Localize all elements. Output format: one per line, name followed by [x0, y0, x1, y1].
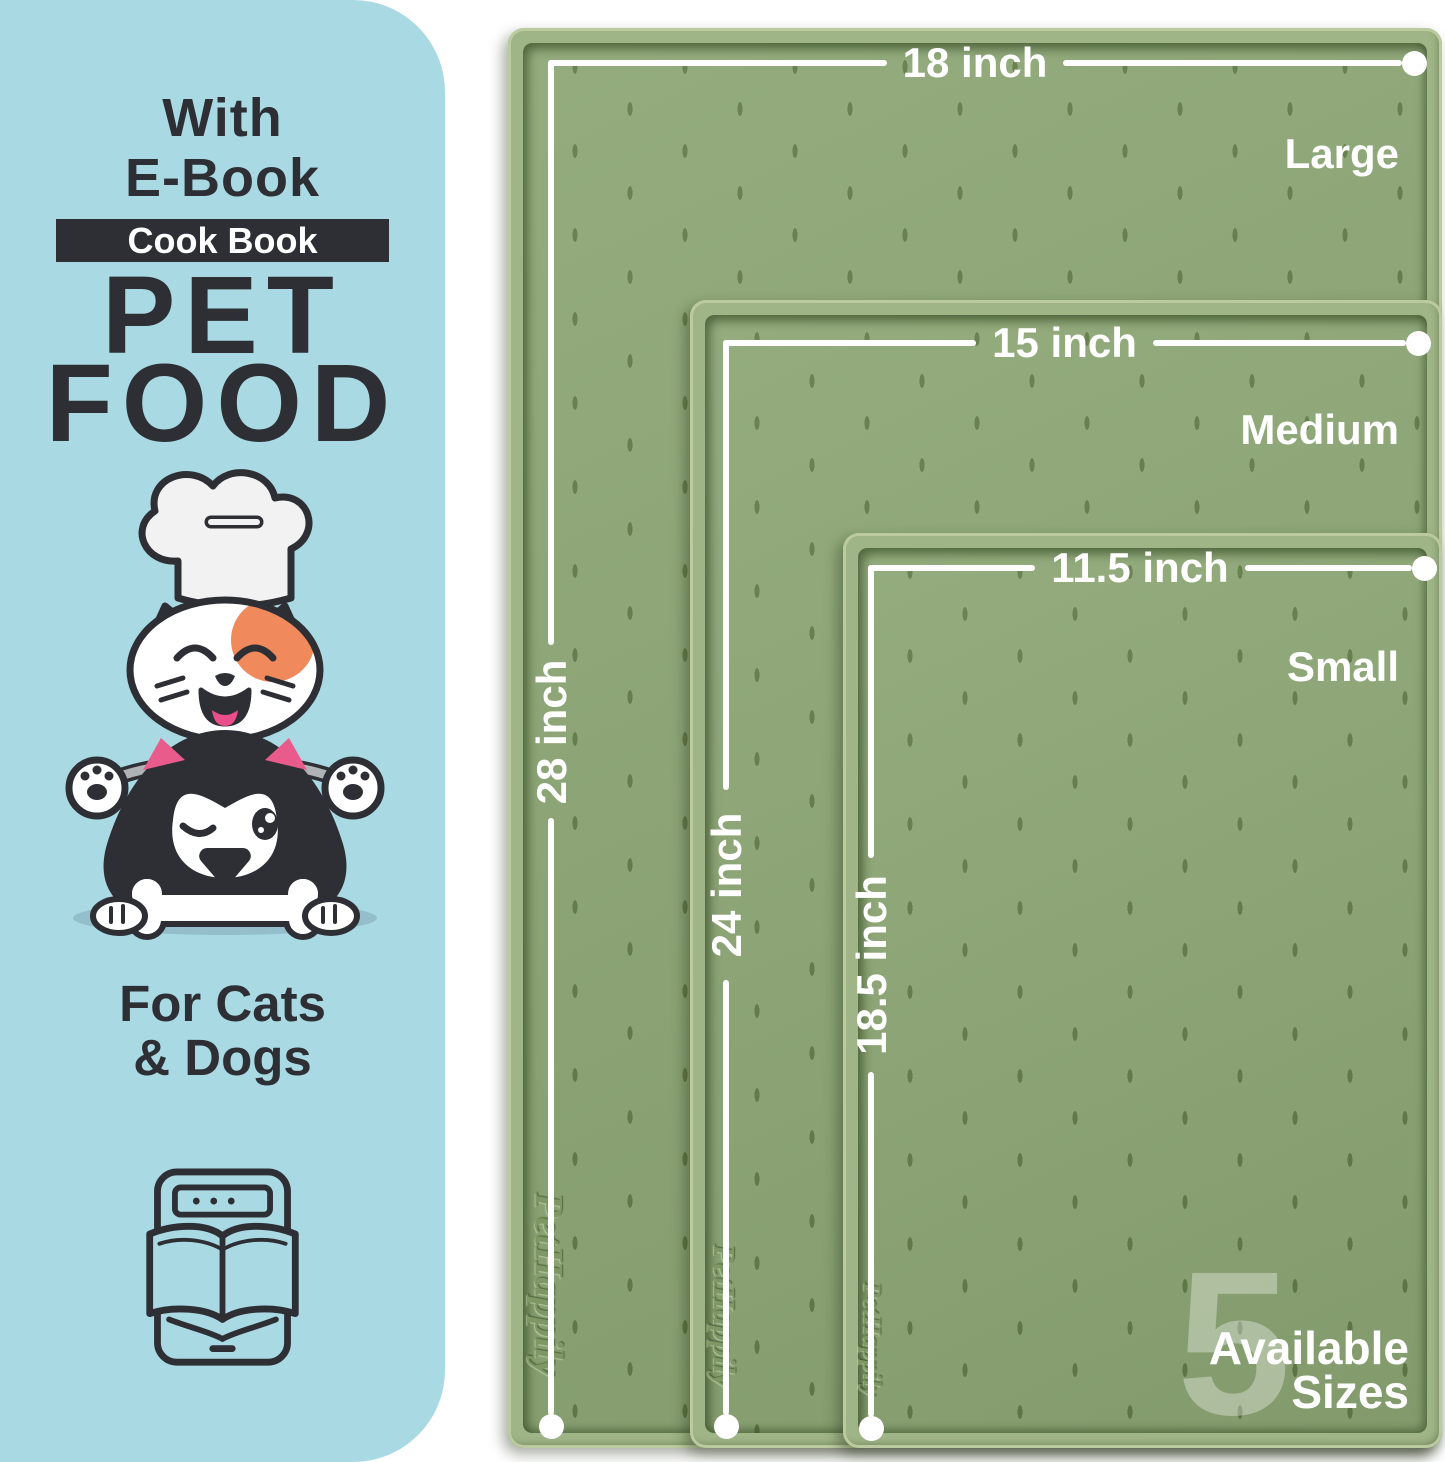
- dim-endpoint-dot: [714, 1414, 739, 1439]
- size-label-small: Small: [1287, 643, 1399, 691]
- left-panel: With E-Book Cook Book PET FOOD: [0, 0, 445, 1462]
- dim-line: [548, 818, 554, 1415]
- for-cats-text: For Cats: [0, 977, 445, 1031]
- available-text: Available: [1209, 1326, 1409, 1370]
- dim-line: [723, 980, 729, 1415]
- dim-line: [868, 565, 1035, 571]
- dim-endpoint-dot: [539, 1414, 564, 1439]
- size-label-large: Large: [1285, 130, 1399, 178]
- dim-height-large: 28 inch: [539, 60, 564, 1440]
- dim-line: [723, 340, 976, 346]
- page-title: PET FOOD: [0, 272, 445, 448]
- ebook-text: E-Book: [0, 148, 445, 208]
- audience-text: For Cats & Dogs: [0, 977, 445, 1085]
- ebook-tablet-icon: [140, 1166, 305, 1372]
- dim-height-small: 18.5 inch: [859, 565, 884, 1442]
- available-sizes-badge: 5 Available Sizes: [1209, 1326, 1409, 1414]
- dim-endpoint-dot: [859, 1416, 884, 1441]
- dim-width-small: 11.5 inch: [868, 555, 1437, 581]
- dim-line: [1153, 340, 1406, 346]
- panel-subtitle: With E-Book: [0, 88, 445, 208]
- dim-endpoint-dot: [1406, 331, 1431, 356]
- dim-line: [868, 565, 874, 858]
- dim-height-large-label: 28 inch: [539, 645, 564, 818]
- dim-line: [868, 1072, 874, 1417]
- dim-endpoint-dot: [1402, 51, 1427, 76]
- dim-width-large-label: 18 inch: [887, 39, 1064, 87]
- dim-height-small-label: 18.5 inch: [859, 858, 884, 1072]
- product-infographic: With E-Book Cook Book PET FOOD: [0, 0, 1445, 1462]
- dim-line: [548, 60, 554, 645]
- dim-height-medium-label: 24 inch: [714, 790, 739, 980]
- with-text: With: [0, 88, 445, 148]
- dim-width-medium: 15 inch: [723, 330, 1431, 356]
- dim-line: [1063, 60, 1402, 66]
- dim-height-medium: 24 inch: [714, 340, 739, 1440]
- sizes-text: Sizes: [1209, 1370, 1409, 1414]
- size-label-medium: Medium: [1240, 406, 1399, 454]
- and-dogs-text: & Dogs: [0, 1031, 445, 1085]
- dim-endpoint-dot: [1412, 556, 1437, 581]
- cat-dog-chef-illustration: [15, 458, 435, 958]
- dim-width-medium-label: 15 inch: [976, 319, 1153, 367]
- dim-line: [723, 340, 729, 790]
- dim-line: [548, 60, 887, 66]
- title-line-food: FOOD: [0, 360, 445, 448]
- dim-width-large: 18 inch: [548, 50, 1427, 76]
- dim-line: [1245, 565, 1412, 571]
- dim-width-small-label: 11.5 inch: [1035, 544, 1244, 592]
